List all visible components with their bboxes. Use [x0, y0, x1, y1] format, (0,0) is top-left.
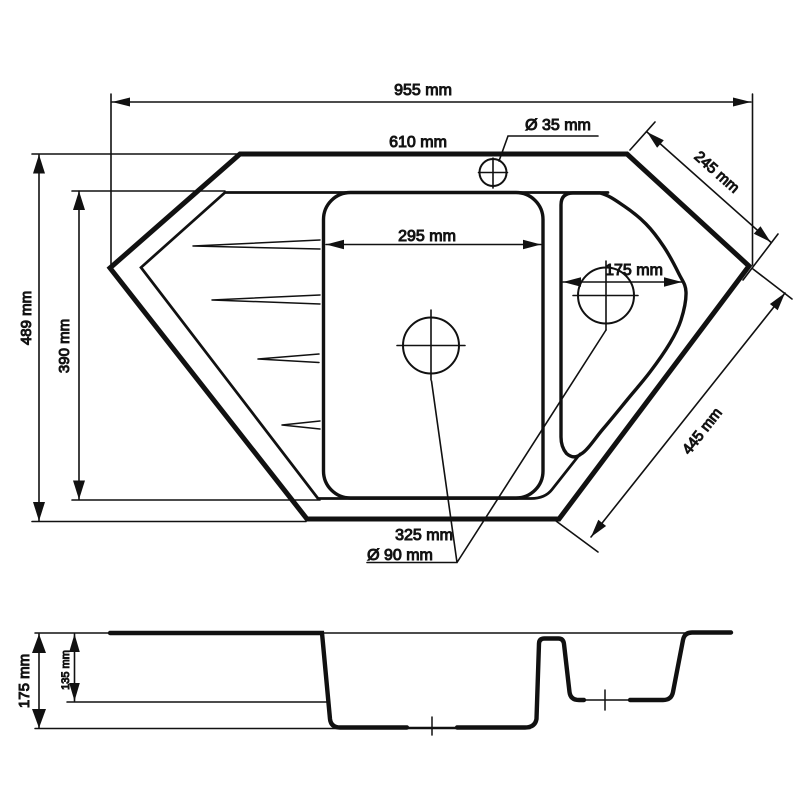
- svg-text:Ø 35 mm: Ø 35 mm: [525, 117, 591, 134]
- svg-text:390 mm: 390 mm: [56, 319, 73, 373]
- svg-text:489 mm: 489 mm: [18, 291, 35, 345]
- svg-text:295 mm: 295 mm: [398, 228, 456, 245]
- svg-text:610 mm: 610 mm: [389, 134, 447, 151]
- svg-text:175 mm: 175 mm: [605, 262, 663, 279]
- svg-text:325 mm: 325 mm: [395, 527, 453, 544]
- svg-text:135 mm: 135 mm: [60, 650, 72, 690]
- svg-text:955 mm: 955 mm: [394, 82, 452, 99]
- svg-text:175 mm: 175 mm: [16, 654, 33, 708]
- svg-text:Ø 90 mm: Ø 90 mm: [367, 547, 433, 564]
